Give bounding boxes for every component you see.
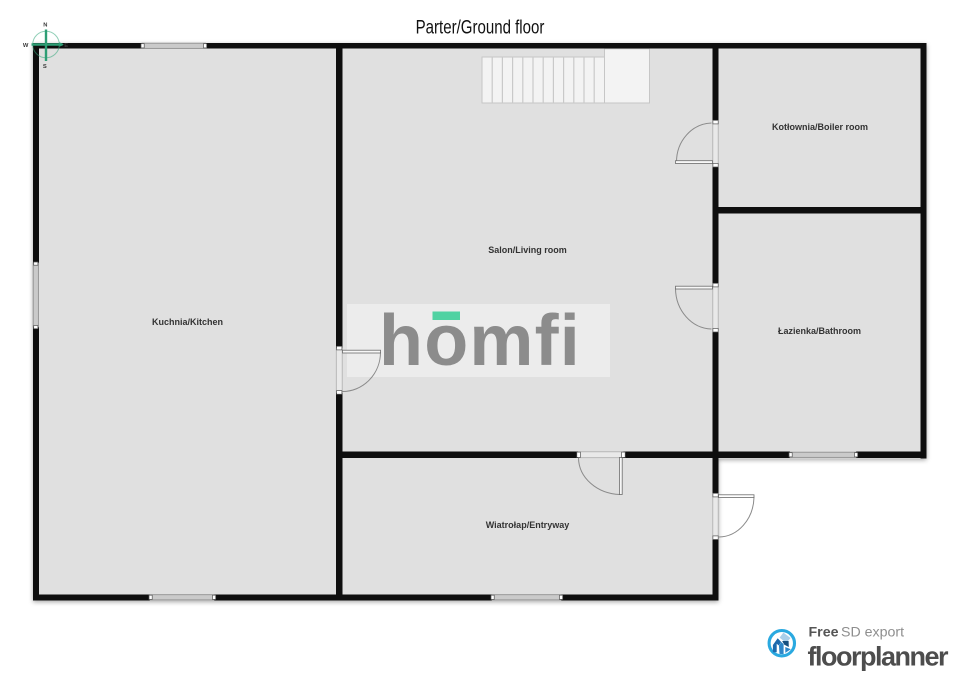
svg-text:Free: Free [809,625,839,641]
svg-text:S: S [43,64,47,70]
svg-text:Salon/Living room: Salon/Living room [488,245,567,255]
svg-text:Kotłownia/Boiler room: Kotłownia/Boiler room [772,122,868,132]
svg-text:Wiatrołap/Entryway: Wiatrołap/Entryway [486,520,569,530]
svg-text:W: W [23,43,29,49]
svg-text:E: E [64,43,68,49]
svg-text:floorplanner: floorplanner [808,641,949,671]
svg-text:homfi: homfi [379,301,581,381]
svg-text:Parter/Ground floor: Parter/Ground floor [416,16,545,38]
svg-text:N: N [43,23,47,29]
svg-text:Łazienka/Bathroom: Łazienka/Bathroom [778,326,861,336]
svg-text:SD export: SD export [841,625,904,641]
svg-text:Kuchnia/Kitchen: Kuchnia/Kitchen [152,317,223,327]
